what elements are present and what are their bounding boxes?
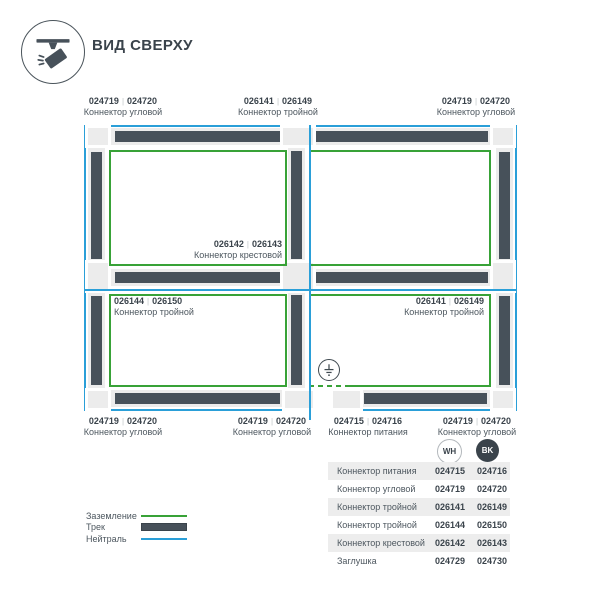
part-label-top-center: 026141|026149 Коннектор тройной <box>203 96 353 118</box>
track-segment <box>115 272 280 283</box>
ground-loop-line <box>346 385 491 387</box>
table-row: Заглушка024729024730 <box>328 552 510 570</box>
part-numbers: 026141|026149 <box>203 96 353 107</box>
part-label-left-t: 026144|026150 Коннектор тройной <box>114 296 254 318</box>
corner-connector <box>85 388 111 411</box>
part-label-top-left: 024719|024720 Коннектор угловой <box>48 96 198 118</box>
table-row: Коннектор крестовой026142026143 <box>328 534 510 552</box>
part-numbers: 026144|026150 <box>114 296 254 307</box>
legend-label-neutral: Нейтраль <box>86 534 127 544</box>
color-badge-wh: WH <box>437 439 462 464</box>
ground-dashed-line <box>309 385 346 387</box>
track-segment <box>291 295 302 385</box>
track-spotlight-glyph <box>30 29 76 75</box>
page-title: ВИД СВЕРХУ <box>92 37 193 54</box>
part-name: Коннектор угловой <box>48 107 198 118</box>
table-row: Коннектор тройной026141026149 <box>328 498 510 516</box>
part-label-top-right: 024719|024720 Коннектор угловой <box>401 96 551 118</box>
corner-connector <box>490 125 516 148</box>
track-segment <box>364 393 487 404</box>
track-segment <box>115 393 280 404</box>
track-segment <box>91 152 102 259</box>
part-name: Коннектор тройной <box>114 307 254 318</box>
track-layout-diagram: 026142|026143 Коннектор крестовой 026144… <box>84 125 517 411</box>
legend-swatch-track <box>141 523 187 531</box>
track-spotlight-icon <box>21 20 85 84</box>
earth-ground-icon <box>318 359 340 381</box>
table-row: Коннектор угловой024719024720 <box>328 480 510 498</box>
ground-loop-rect <box>309 150 491 266</box>
ground-loop-line <box>489 294 491 387</box>
table-row: Коннектор питания024715024716 <box>328 462 510 480</box>
corner-connector <box>490 388 516 411</box>
table-row: Коннектор тройной026144026150 <box>328 516 510 534</box>
track-segment <box>313 272 488 283</box>
part-name: Коннектор угловой <box>401 107 551 118</box>
track-segment <box>291 151 302 259</box>
part-name: Коннектор угловой <box>402 427 552 438</box>
parts-table: Коннектор питания024715024716 Коннектор … <box>328 462 510 570</box>
legend-swatch-neutral <box>141 538 187 540</box>
neutral-line-vertical <box>309 125 311 420</box>
part-numbers: 024719|024720 <box>402 416 552 427</box>
part-numbers: 024719|024720 <box>48 96 198 107</box>
part-name: Коннектор крестовой <box>142 250 282 261</box>
part-label-cross: 026142|026143 Коннектор крестовой <box>142 239 282 261</box>
part-name: Коннектор тройной <box>344 307 484 318</box>
part-name: Коннектор тройной <box>203 107 353 118</box>
corner-connector <box>85 125 111 148</box>
part-numbers: 024719|024720 <box>48 416 198 427</box>
catalog-page: ВИД СВЕРХУ 024719|024720 Коннектор углов… <box>0 0 600 600</box>
part-numbers: 026142|026143 <box>142 239 282 250</box>
neutral-line-horizontal <box>84 289 517 291</box>
track-segment <box>115 131 280 142</box>
track-segment <box>91 296 102 385</box>
part-numbers: 026141|026149 <box>344 296 484 307</box>
legend-swatch-ground <box>141 515 187 517</box>
part-label-bottom-right: 024719|024720 Коннектор угловой <box>402 416 552 438</box>
track-segment <box>499 296 510 385</box>
track-segment <box>313 131 488 142</box>
legend-label-ground: Заземление <box>86 511 137 521</box>
part-numbers: 024719|024720 <box>401 96 551 107</box>
neutral-gap <box>316 406 333 415</box>
part-label-right-t: 026141|026149 Коннектор тройной <box>344 296 484 318</box>
earth-ground-glyph <box>320 361 338 379</box>
power-connector <box>330 388 363 411</box>
color-badge-bk: BK <box>476 439 499 462</box>
part-name: Коннектор угловой <box>48 427 198 438</box>
legend-label-track: Трек <box>86 522 105 532</box>
part-label-bottom-left: 024719|024720 Коннектор угловой <box>48 416 198 438</box>
track-segment <box>499 152 510 259</box>
